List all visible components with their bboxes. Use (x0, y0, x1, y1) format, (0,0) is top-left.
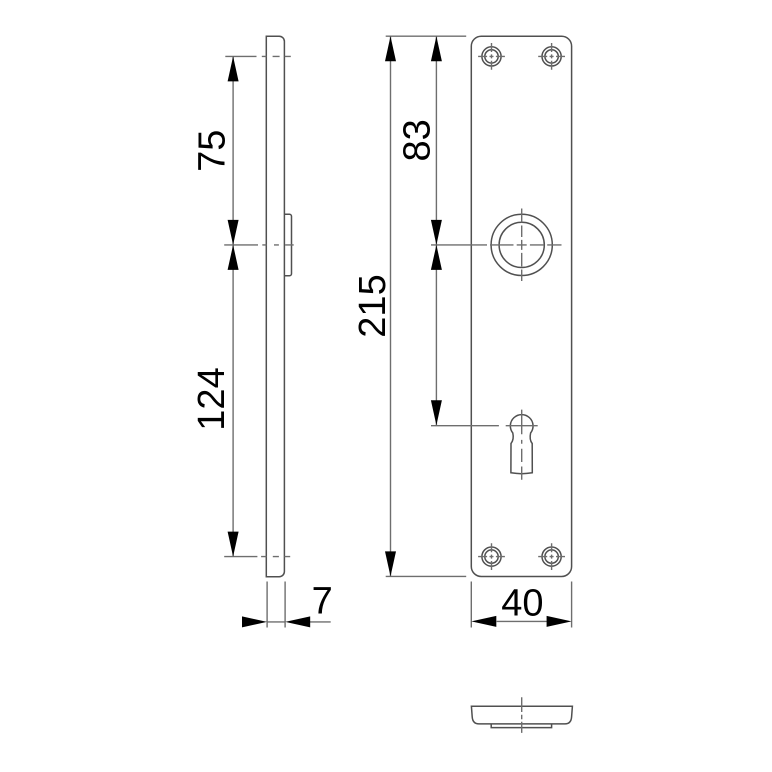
svg-text:124: 124 (191, 367, 233, 430)
svg-text:7: 7 (312, 581, 333, 623)
svg-text:83: 83 (397, 119, 439, 161)
svg-text:215: 215 (352, 274, 394, 337)
svg-text:40: 40 (501, 583, 543, 625)
svg-text:75: 75 (192, 130, 234, 172)
